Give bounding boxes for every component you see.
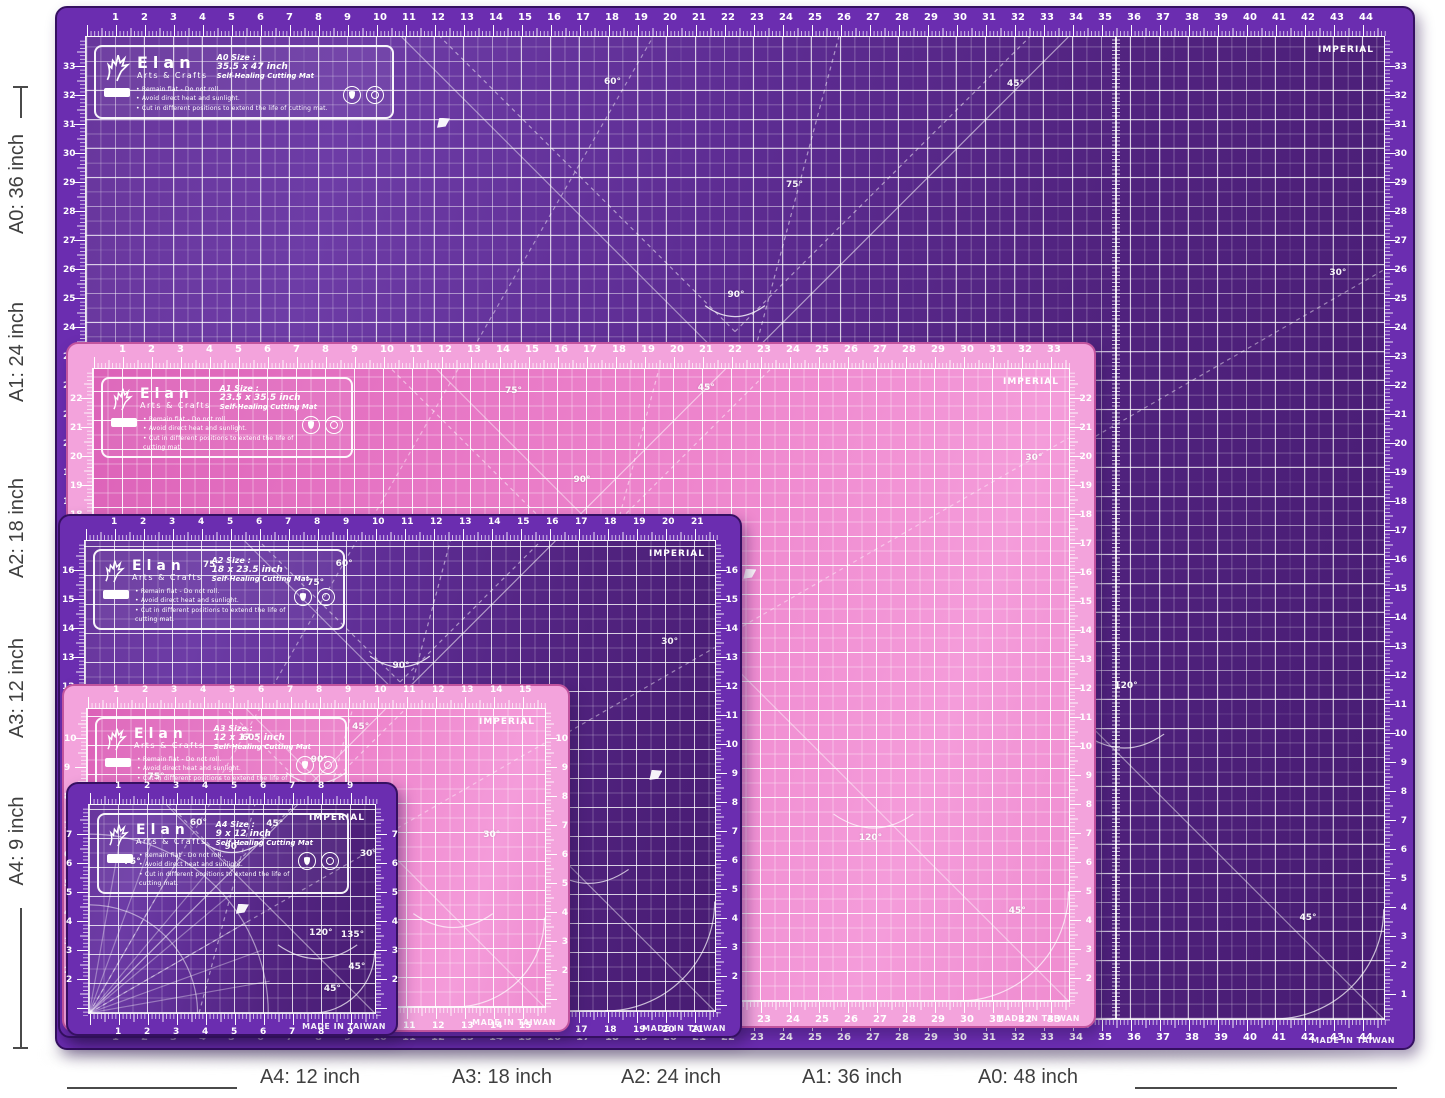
ruler-ticks-top <box>88 697 548 708</box>
ruler-number: 26 <box>844 345 858 355</box>
brand-column: ElanArts & Crafts <box>137 55 208 80</box>
ruler-number: 9 <box>343 517 349 527</box>
ruler-number: 33 <box>63 62 76 72</box>
ruler-number: 6 <box>264 345 271 355</box>
ruler-number: 18 <box>604 1025 617 1035</box>
brand-name: Elan <box>140 387 211 401</box>
product-image-canvas: 75°60°45°90°30°120°45°ElanArts & CraftsA… <box>0 0 1445 1098</box>
ruler-number: 3 <box>169 517 175 527</box>
ruler-number: 12 <box>725 682 738 692</box>
angle-label: 45° <box>324 984 341 994</box>
ruler-number: 15 <box>1079 597 1092 607</box>
ruler-number: 34 <box>1069 13 1083 23</box>
ruler-number: 33 <box>1040 1033 1054 1043</box>
ruler-number: 11 <box>725 711 738 721</box>
ruler-number: 2 <box>392 975 398 985</box>
angle-label: 90° <box>727 290 744 300</box>
warning-badge <box>103 590 129 599</box>
ruler-ticks-top <box>94 357 1072 368</box>
left-size-label: A0: 36 inch <box>6 134 29 234</box>
ruler-number: 10 <box>380 345 394 355</box>
ruler-number: 5 <box>228 13 235 23</box>
ruler-number: 32 <box>1011 1033 1025 1043</box>
ring-icon <box>317 588 335 606</box>
care-icons <box>298 852 339 870</box>
care-bullets: • Remain flat - Do not roll.• Avoid dire… <box>135 587 288 624</box>
imperial-label: IMPERIAL <box>309 813 365 823</box>
ruler-number: 19 <box>1394 468 1407 478</box>
elan-deer-logo <box>107 822 129 847</box>
ruler-number: 4 <box>200 685 206 695</box>
ruler-number: 13 <box>467 345 481 355</box>
angle-label: 75° <box>505 386 522 396</box>
ruler-number: 28 <box>63 207 76 217</box>
ruler-number: 5 <box>229 685 235 695</box>
angle-label: 45° <box>1009 906 1026 916</box>
ring-shape <box>371 91 379 99</box>
ruler-number: 9 <box>351 345 358 355</box>
ruler-number: 16 <box>1079 568 1092 578</box>
ruler-number: 12 <box>1079 684 1092 694</box>
ruler-number: 22 <box>721 13 735 23</box>
ruler-number: 23 <box>750 13 764 23</box>
ruler-number: 28 <box>895 13 909 23</box>
ruler-number: 3 <box>562 937 568 947</box>
droplet-icon <box>343 86 361 104</box>
logo-block-a1: ElanArts & CraftsA1 Size :23.5 x 35.5 in… <box>101 377 353 458</box>
logo-row-brand: ElanArts & CraftsA2 Size :18 x 23.5 inch… <box>103 556 335 584</box>
warning-badge <box>104 88 130 97</box>
ruler-number: 31 <box>1394 120 1407 130</box>
ruler-number: 14 <box>490 685 503 695</box>
size-dimensions: 35.5 x 47 inch <box>217 62 314 72</box>
ruler-number: 2 <box>144 781 150 791</box>
ruler-number: 5 <box>562 879 568 889</box>
ruler-number: 19 <box>641 345 655 355</box>
ruler-number: 9 <box>732 769 738 779</box>
care-bullet: • Cut in different positions to extend t… <box>135 606 288 625</box>
ruler-number: 30 <box>953 1033 967 1043</box>
brand-subtitle: Arts & Crafts <box>134 741 205 750</box>
ruler-ticks-right <box>716 542 727 1014</box>
ruler-number: 25 <box>808 13 822 23</box>
ruler-number: 34 <box>1069 1033 1083 1043</box>
brand-name: Elan <box>136 823 207 837</box>
size-title-column: A1 Size :23.5 x 35.5 inchSelf-Healing Cu… <box>220 384 317 412</box>
ruler-number: 18 <box>1079 510 1092 520</box>
brand-column: ElanArts & Crafts <box>136 823 207 846</box>
ruler-number: 7 <box>287 685 293 695</box>
ruler-number: 8 <box>732 798 738 808</box>
ruler-number: 31 <box>982 1033 996 1043</box>
ruler-ticks-top <box>90 793 378 804</box>
ruler-number: 1 <box>113 685 119 695</box>
ruler-number: 15 <box>518 13 532 23</box>
care-bullets: • Remain flat - Do not roll.• Avoid dire… <box>136 85 337 113</box>
elan-deer-logo <box>103 558 125 583</box>
elan-deer-logo <box>104 52 130 82</box>
droplet-icon <box>302 416 320 434</box>
ruler-number: 2 <box>144 1027 150 1037</box>
ruler-number: 14 <box>489 13 503 23</box>
droplet-shape <box>300 593 306 601</box>
ruler-number: 3 <box>173 781 179 791</box>
ring-icon <box>325 416 343 434</box>
cutting-mat-a4: 60°45°90°75°30°120°135°45°45°ElanArts & … <box>66 782 398 1036</box>
ruler-ticks-right <box>546 710 557 1010</box>
ruler-number: 6 <box>1401 845 1407 855</box>
ruler-number: 8 <box>315 13 322 23</box>
ruler-number: 3 <box>177 345 184 355</box>
ruler-number: 6 <box>256 517 262 527</box>
ruler-number: 40 <box>1243 13 1257 23</box>
ruler-number: 42 <box>1301 13 1315 23</box>
ruler-number: 20 <box>670 345 684 355</box>
ring-shape <box>326 857 334 865</box>
angle-label: 30° <box>661 637 678 647</box>
size-dimensions: 23.5 x 35.5 inch <box>220 393 317 403</box>
brand-subtitle: Arts & Crafts <box>132 573 203 582</box>
ruler-number: 21 <box>1079 423 1092 433</box>
ruler-number: 12 <box>431 13 445 23</box>
ruler-number: 1 <box>119 345 126 355</box>
size-title: A3 Size : <box>214 724 311 733</box>
ruler-number: 33 <box>1394 62 1407 72</box>
ruler-number: 12 <box>430 517 443 527</box>
ruler-number: 5 <box>227 517 233 527</box>
mat-subtitle: Self-Healing Cutting Mat <box>216 839 313 848</box>
ruler-number: 9 <box>1401 758 1407 768</box>
ruler-number: 18 <box>605 13 619 23</box>
ruler-number: 13 <box>725 653 738 663</box>
ruler-number: 26 <box>837 1033 851 1043</box>
angle-label: 90° <box>573 475 590 485</box>
angle-label: 135° <box>341 930 364 940</box>
ruler-number: 13 <box>62 653 75 663</box>
ruler-number: 29 <box>931 345 945 355</box>
ruler-number: 7 <box>289 1027 295 1037</box>
ruler-number: 29 <box>1394 178 1407 188</box>
ruler-number: 6 <box>260 781 266 791</box>
ruler-number: 2 <box>1401 961 1407 971</box>
ruler-number: 4 <box>206 345 213 355</box>
made-in-label: MADE IN TAIWAN <box>472 1018 556 1027</box>
ruler-number: 14 <box>496 345 510 355</box>
ruler-number: 43 <box>1330 13 1344 23</box>
ruler-number: 24 <box>786 345 800 355</box>
ruler-number: 13 <box>461 685 474 695</box>
ruler-number: 11 <box>409 345 423 355</box>
ruler-number: 30 <box>960 345 974 355</box>
ruler-number: 32 <box>1394 91 1407 101</box>
ruler-number: 17 <box>575 517 588 527</box>
ruler-number: 2 <box>142 685 148 695</box>
logo-block-a4: ElanArts & CraftsA4 Size :9 x 12 inchSel… <box>97 813 349 894</box>
imperial-label: IMPERIAL <box>1318 45 1374 55</box>
ruler-number: 13 <box>1394 642 1407 652</box>
droplet-shape <box>308 421 314 429</box>
ruler-number: 29 <box>931 1015 945 1025</box>
size-dimensions: 9 x 12 inch <box>216 829 313 839</box>
ruler-number: 9 <box>1086 771 1092 781</box>
ruler-number: 26 <box>1394 265 1407 275</box>
ruler-number: 8 <box>314 517 320 527</box>
care-bullet: • Avoid direct heat and sunlight. <box>136 94 337 103</box>
ruler-number: 10 <box>372 517 385 527</box>
ring-icon <box>321 852 339 870</box>
angle-label: 45° <box>348 962 365 972</box>
ruler-number: 36 <box>1127 13 1141 23</box>
ruler-number: 19 <box>633 517 646 527</box>
ruler-number: 4 <box>562 908 568 918</box>
fold-line-ticks <box>1112 37 1120 1019</box>
angle-label: 45° <box>352 722 369 732</box>
brand-name: Elan <box>137 55 208 71</box>
bottom-size-label: A2: 24 inch <box>621 1066 721 1089</box>
ruler-number: 3 <box>392 946 398 956</box>
ruler-number: 32 <box>63 91 76 101</box>
ruler-number: 39 <box>1214 1033 1228 1043</box>
ruler-number: 22 <box>1394 381 1407 391</box>
ruler-number: 21 <box>692 13 706 23</box>
care-bullet: • Remain flat - Do not roll. <box>139 851 292 860</box>
ruler-number: 1 <box>115 781 121 791</box>
ruler-number: 35 <box>1098 13 1112 23</box>
ruler-number: 24 <box>63 323 76 333</box>
ruler-number: 14 <box>725 624 738 634</box>
ruler-number: 10 <box>374 685 387 695</box>
ruler-number: 5 <box>732 885 738 895</box>
angle-label: 120° <box>859 833 882 843</box>
ruler-number: 15 <box>62 595 75 605</box>
bottom-size-label: A4: 12 inch <box>260 1066 360 1089</box>
ruler-number: 30 <box>953 13 967 23</box>
ruler-number: 2 <box>562 966 568 976</box>
ruler-number: 6 <box>562 850 568 860</box>
ruler-number: 11 <box>403 685 416 695</box>
logo-row-care: • Remain flat - Do not roll.• Avoid dire… <box>107 851 339 888</box>
ruler-number: 5 <box>66 888 72 898</box>
ruler-number: 6 <box>257 13 264 23</box>
ruler-number: 33 <box>1040 13 1054 23</box>
ruler-number: 16 <box>1394 555 1407 565</box>
size-title-column: A4 Size :9 x 12 inchSelf-Healing Cutting… <box>216 820 313 848</box>
angle-label: 60° <box>604 77 621 87</box>
ruler-number: 4 <box>198 517 204 527</box>
ruler-number: 21 <box>691 517 704 527</box>
ruler-number: 10 <box>373 13 387 23</box>
logo-row-care: • Remain flat - Do not roll.• Avoid dire… <box>104 85 384 113</box>
care-bullet: • Remain flat - Do not roll. <box>135 587 288 596</box>
ruler-number: 4 <box>732 914 738 924</box>
ruler-number: 9 <box>64 763 70 773</box>
ruler-number: 15 <box>517 517 530 527</box>
ruler-number: 1 <box>115 1027 121 1037</box>
ruler-number: 6 <box>66 859 72 869</box>
care-bullet: • Avoid direct heat and sunlight. <box>139 860 292 869</box>
ruler-number: 24 <box>786 1015 800 1025</box>
ruler-number: 30 <box>63 149 76 159</box>
ruler-number: 18 <box>1394 497 1407 507</box>
dimension-line-bottom-right <box>1135 1087 1397 1089</box>
ruler-number: 8 <box>562 792 568 802</box>
dimension-line-left-bottom <box>20 908 22 1048</box>
angle-label: 45° <box>698 383 715 393</box>
ruler-number: 7 <box>66 830 72 840</box>
ruler-number: 26 <box>844 1015 858 1025</box>
ruler-number: 17 <box>1079 539 1092 549</box>
ruler-number: 44 <box>1359 13 1373 23</box>
care-bullet: • Cut in different positions to extend t… <box>139 870 292 889</box>
ruler-number: 31 <box>989 345 1003 355</box>
ruler-number: 8 <box>1086 800 1092 810</box>
ring-shape <box>324 761 332 769</box>
ruler-number: 7 <box>1086 829 1092 839</box>
ruler-number: 27 <box>866 1033 880 1043</box>
ruler-number: 2 <box>1086 974 1092 984</box>
care-bullets: • Remain flat - Do not roll.• Avoid dire… <box>143 415 296 452</box>
ruler-number: 23 <box>750 1033 764 1043</box>
mat-subtitle: Self-Healing Cutting Mat <box>220 403 317 412</box>
ruler-number: 8 <box>318 781 324 791</box>
warning-badge <box>105 758 131 767</box>
droplet-shape <box>349 91 355 99</box>
brand-column: ElanArts & Crafts <box>134 727 205 750</box>
size-title-column: A3 Size :12 x 17.5 inchSelf-Healing Cutt… <box>214 724 311 752</box>
ruler-ticks-left <box>77 806 88 1016</box>
care-bullet: • Remain flat - Do not roll. <box>143 415 296 424</box>
care-icons <box>343 86 384 104</box>
ruler-number: 19 <box>70 481 83 491</box>
ruler-number: 15 <box>525 345 539 355</box>
imperial-label: IMPERIAL <box>1003 377 1059 387</box>
left-size-label: A4: 9 inch <box>6 797 29 886</box>
ruler-number: 20 <box>663 13 677 23</box>
ruler-number: 6 <box>392 859 398 869</box>
brand-name: Elan <box>132 559 203 573</box>
ruler-number: 12 <box>1394 671 1407 681</box>
care-icons <box>296 756 337 774</box>
ruler-number: 28 <box>895 1033 909 1043</box>
ruler-number: 6 <box>258 685 264 695</box>
dimension-line-bottom-left <box>67 1087 237 1089</box>
ruler-number: 21 <box>1394 410 1407 420</box>
ruler-number: 14 <box>488 517 501 527</box>
droplet-shape <box>302 761 308 769</box>
ruler-number: 28 <box>902 1015 916 1025</box>
ruler-number: 8 <box>316 685 322 695</box>
ruler-number: 11 <box>401 517 414 527</box>
ruler-number: 17 <box>583 345 597 355</box>
ruler-number: 31 <box>982 13 996 23</box>
ruler-number: 11 <box>1079 713 1092 723</box>
logo-row-care: • Remain flat - Do not roll.• Avoid dire… <box>103 587 335 624</box>
imperial-label: IMPERIAL <box>479 717 535 727</box>
ruler-number: 12 <box>432 1021 445 1031</box>
care-bullets: • Remain flat - Do not roll.• Avoid dire… <box>139 851 292 888</box>
bottom-size-label: A0: 48 inch <box>978 1066 1078 1089</box>
size-title-column: A2 Size :18 x 23.5 inchSelf-Healing Cutt… <box>212 556 309 584</box>
ruler-ticks-right <box>376 806 387 1016</box>
ruler-number: 21 <box>70 423 83 433</box>
size-title: A1 Size : <box>220 384 317 393</box>
logo-block-a2: ElanArts & CraftsA2 Size :18 x 23.5 inch… <box>93 549 345 630</box>
ruler-number: 5 <box>1086 887 1092 897</box>
ruler-number: 3 <box>170 13 177 23</box>
ruler-number: 5 <box>392 888 398 898</box>
ruler-number: 31 <box>63 120 76 130</box>
ruler-number: 2 <box>66 975 72 985</box>
ruler-number: 1 <box>112 13 119 23</box>
logo-block-a0: ElanArts & CraftsA0 Size :35.5 x 47 inch… <box>94 45 394 119</box>
ruler-number: 4 <box>199 13 206 23</box>
warning-badge <box>111 418 137 427</box>
ruler-number: 29 <box>924 1033 938 1043</box>
ruler-number: 7 <box>392 830 398 840</box>
ruler-number: 8 <box>1401 787 1407 797</box>
ruler-number: 4 <box>202 1027 208 1037</box>
ruler-number: 26 <box>837 13 851 23</box>
ruler-number: 6 <box>732 856 738 866</box>
ruler-number: 11 <box>1394 700 1407 710</box>
left-size-label: A3: 12 inch <box>6 638 29 738</box>
angle-label: 45° <box>1007 79 1024 89</box>
ruler-number: 20 <box>70 452 83 462</box>
bottom-size-label: A1: 36 inch <box>802 1066 902 1089</box>
ruler-number: 29 <box>63 178 76 188</box>
ruler-number: 15 <box>725 595 738 605</box>
ruler-number: 25 <box>815 1015 829 1025</box>
ruler-number: 5 <box>231 1027 237 1037</box>
ruler-number: 16 <box>62 566 75 576</box>
fold-line <box>1115 37 1117 1019</box>
ruler-number: 25 <box>63 294 76 304</box>
ruler-number: 18 <box>612 345 626 355</box>
size-title: A0 Size : <box>217 53 314 62</box>
ruler-number: 40 <box>1243 1033 1257 1043</box>
ruler-number: 41 <box>1272 1033 1286 1043</box>
ruler-number: 16 <box>725 566 738 576</box>
ruler-ticks-top <box>86 529 718 540</box>
made-in-label: MADE IN TAIWAN <box>1311 1036 1395 1045</box>
ruler-number: 25 <box>1394 294 1407 304</box>
brand-column: ElanArts & Crafts <box>132 559 203 582</box>
ruler-number: 27 <box>1394 236 1407 246</box>
ruler-number: 24 <box>1394 323 1407 333</box>
ruler-number: 3 <box>66 946 72 956</box>
logo-row-care: • Remain flat - Do not roll.• Avoid dire… <box>111 415 343 452</box>
ruler-number: 10 <box>725 740 738 750</box>
care-bullet: • Avoid direct heat and sunlight. <box>143 424 296 433</box>
logo-row-brand: ElanArts & CraftsA1 Size :23.5 x 35.5 in… <box>111 384 343 412</box>
ring-shape <box>330 421 338 429</box>
ruler-number: 27 <box>873 345 887 355</box>
ruler-number: 1 <box>111 517 117 527</box>
ruler-number: 14 <box>1079 626 1092 636</box>
ruler-number: 9 <box>562 763 568 773</box>
ruler-number: 7 <box>562 821 568 831</box>
ruler-number: 27 <box>866 13 880 23</box>
ruler-number: 7 <box>732 827 738 837</box>
ruler-number: 2 <box>141 13 148 23</box>
care-bullet: • Cut in different positions to extend t… <box>136 104 337 113</box>
size-title-column: A0 Size :35.5 x 47 inchSelf-Healing Cutt… <box>217 53 314 81</box>
ruler-number: 2 <box>732 972 738 982</box>
ruler-number: 12 <box>432 685 445 695</box>
ring-shape <box>322 593 330 601</box>
ruler-number: 11 <box>403 1021 416 1031</box>
logo-row-brand: ElanArts & CraftsA3 Size :12 x 17.5 inch… <box>105 724 337 752</box>
